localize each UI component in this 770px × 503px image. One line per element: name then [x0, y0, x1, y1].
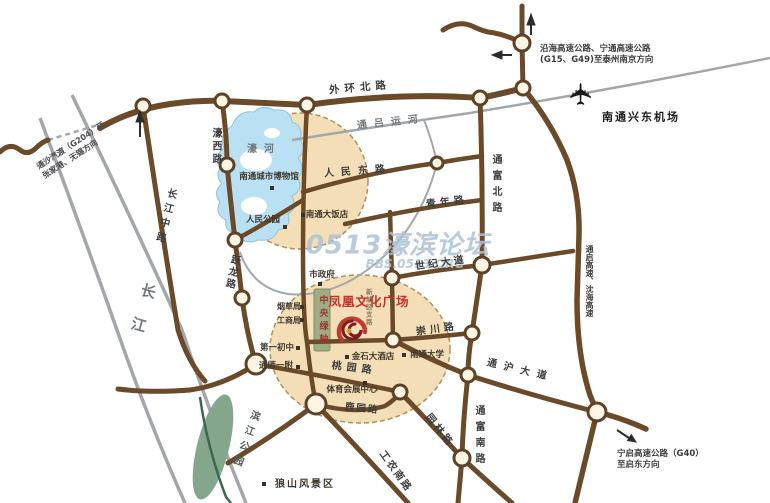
place-label-tobacco-bureau: 烟草局 [277, 303, 301, 311]
waterway-label-hao-river: 濠河 [247, 145, 281, 155]
annotation-ne-expressway-line2: (G15、G49)至泰州南京方向 [540, 55, 653, 66]
place-label-industry-commerce-bureau: 工商局 [277, 317, 301, 325]
road-label-tongfu-south: 通富南路 [473, 405, 483, 469]
se-arrow-icon [617, 430, 636, 442]
annotation-se-expressway-line2: 至启东方向 [617, 460, 704, 471]
place-label-first-junior-middle: 第一初中 [260, 344, 294, 353]
place-label-airport: 南通兴东机场 [602, 112, 680, 123]
binjiang-park-leaf [184, 391, 241, 503]
annotation-ne-expressway: 沿海高速公路、宁通高速公路 (G15、G49)至泰州南京方向 [540, 44, 653, 67]
road-label-tongfu-north: 通富北路 [490, 154, 500, 218]
place-label-langshan-scenic: 狼山风景区 [275, 480, 335, 490]
place-label-jinshi-hotel: 金石大酒店 [352, 353, 395, 362]
place-label-museum: 南通城市博物馆 [239, 173, 299, 182]
place-label-central-green-axis: 中央绿轴 [318, 295, 327, 347]
road-label-haoxi: 濠西路 [210, 128, 220, 167]
airplane-icon: ✈ [565, 81, 600, 106]
ne-up-arrow-icon [527, 14, 535, 35]
west-arrow-icon [492, 51, 512, 59]
annotation-ne-expressway-line1: 沿海高速公路、宁通高速公路 [540, 44, 653, 55]
place-label-sports-expo-center: 体育会展中心 [326, 386, 377, 395]
place-label-city-government: 市政府 [309, 271, 335, 280]
annotation-se-expressway: 宁启高速公路（G40） 至启东方向 [617, 449, 704, 472]
annotation-mid-expressway: 通启高速、沈海高速 [585, 245, 593, 317]
place-label-grand-hotel: 南通大饭店 [306, 211, 349, 220]
place-label-plaza-title: 凤凰文化广场 [328, 296, 409, 309]
annotation-se-expressway-line1: 宁启高速公路（G40） [617, 449, 704, 460]
place-label-tongshi-first-affiliated: 通师一附 [259, 362, 293, 371]
place-label-nantong-university: 南通大学 [410, 351, 444, 360]
place-label-renmin-park: 人民公园 [246, 216, 280, 225]
map-canvas: 0513濠滨论坛 BBS.0513.ORG 外环北路 通吕运河 人民东路 青年路… [0, 0, 770, 503]
